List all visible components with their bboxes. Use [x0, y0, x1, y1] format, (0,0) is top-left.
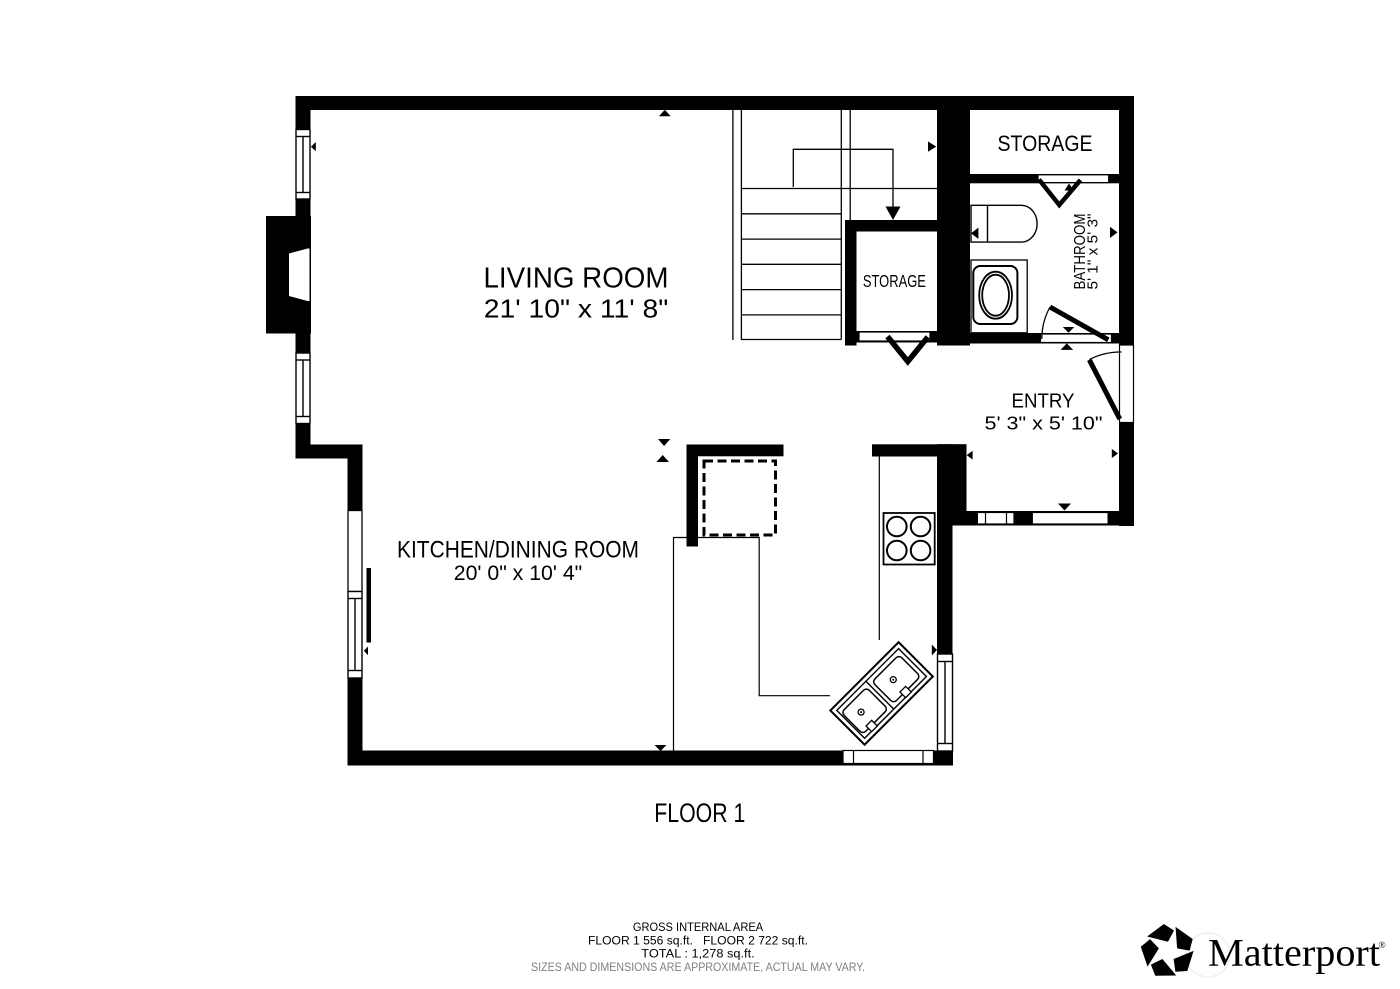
svg-text:TOTAL : 1,278 sq.ft.: TOTAL : 1,278 sq.ft. [641, 949, 754, 961]
svg-text:21' 10" x 11' 8": 21' 10" x 11' 8" [484, 294, 669, 324]
svg-text:FLOOR 1 556 sq.ft. FLOOR 2 7: FLOOR 1 556 sq.ft. FLOOR 2 722 sq.ft. [588, 935, 808, 947]
svg-text:FLOOR 1: FLOOR 1 [654, 798, 745, 828]
svg-text:KITCHEN/DINING ROOM: KITCHEN/DINING ROOM [397, 537, 639, 564]
svg-text:20' 0" x 10' 4": 20' 0" x 10' 4" [454, 561, 583, 585]
svg-text:SIZES AND DIMENSIONS ARE APPRO: SIZES AND DIMENSIONS ARE APPROXIMATE, AC… [531, 962, 865, 974]
svg-text:Matterport: Matterport [1208, 932, 1380, 975]
svg-text:STORAGE: STORAGE [863, 271, 926, 291]
svg-text:5' 1" x 5' 3": 5' 1" x 5' 3" [1085, 214, 1102, 290]
svg-text:LIVING ROOM: LIVING ROOM [484, 263, 669, 295]
svg-text:GROSS INTERNAL AREA: GROSS INTERNAL AREA [633, 922, 764, 934]
svg-text:5' 3" x 5' 10": 5' 3" x 5' 10" [985, 413, 1103, 434]
svg-text:ENTRY: ENTRY [1012, 390, 1075, 413]
svg-text:STORAGE: STORAGE [998, 131, 1093, 156]
svg-text:®: ® [1379, 940, 1386, 951]
